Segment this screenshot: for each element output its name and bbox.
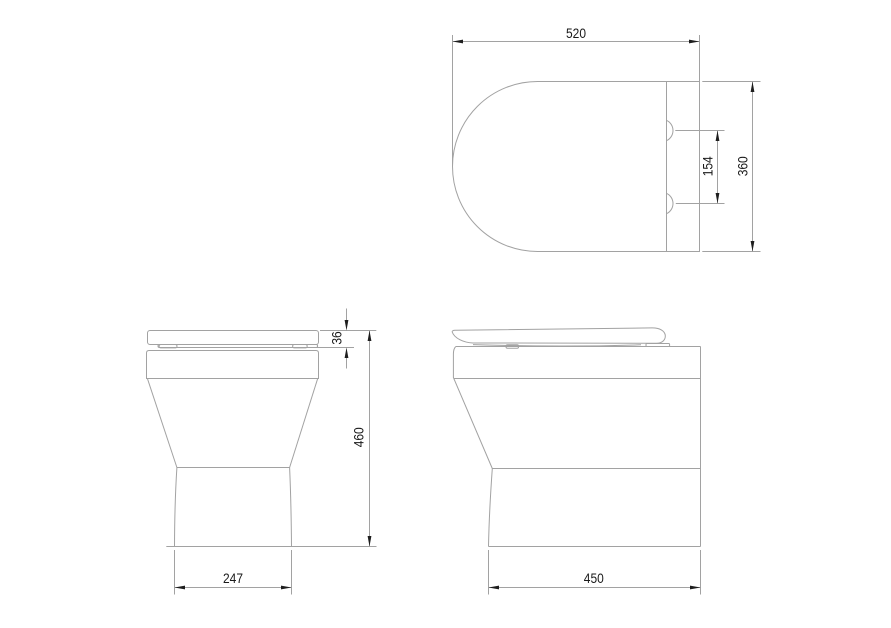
svg-text:460: 460 [351, 427, 367, 447]
svg-text:154: 154 [699, 156, 715, 176]
svg-text:36: 36 [328, 331, 344, 344]
svg-text:360: 360 [734, 156, 750, 176]
svg-text:450: 450 [584, 570, 604, 586]
svg-text:520: 520 [566, 25, 586, 41]
svg-text:247: 247 [223, 570, 243, 586]
